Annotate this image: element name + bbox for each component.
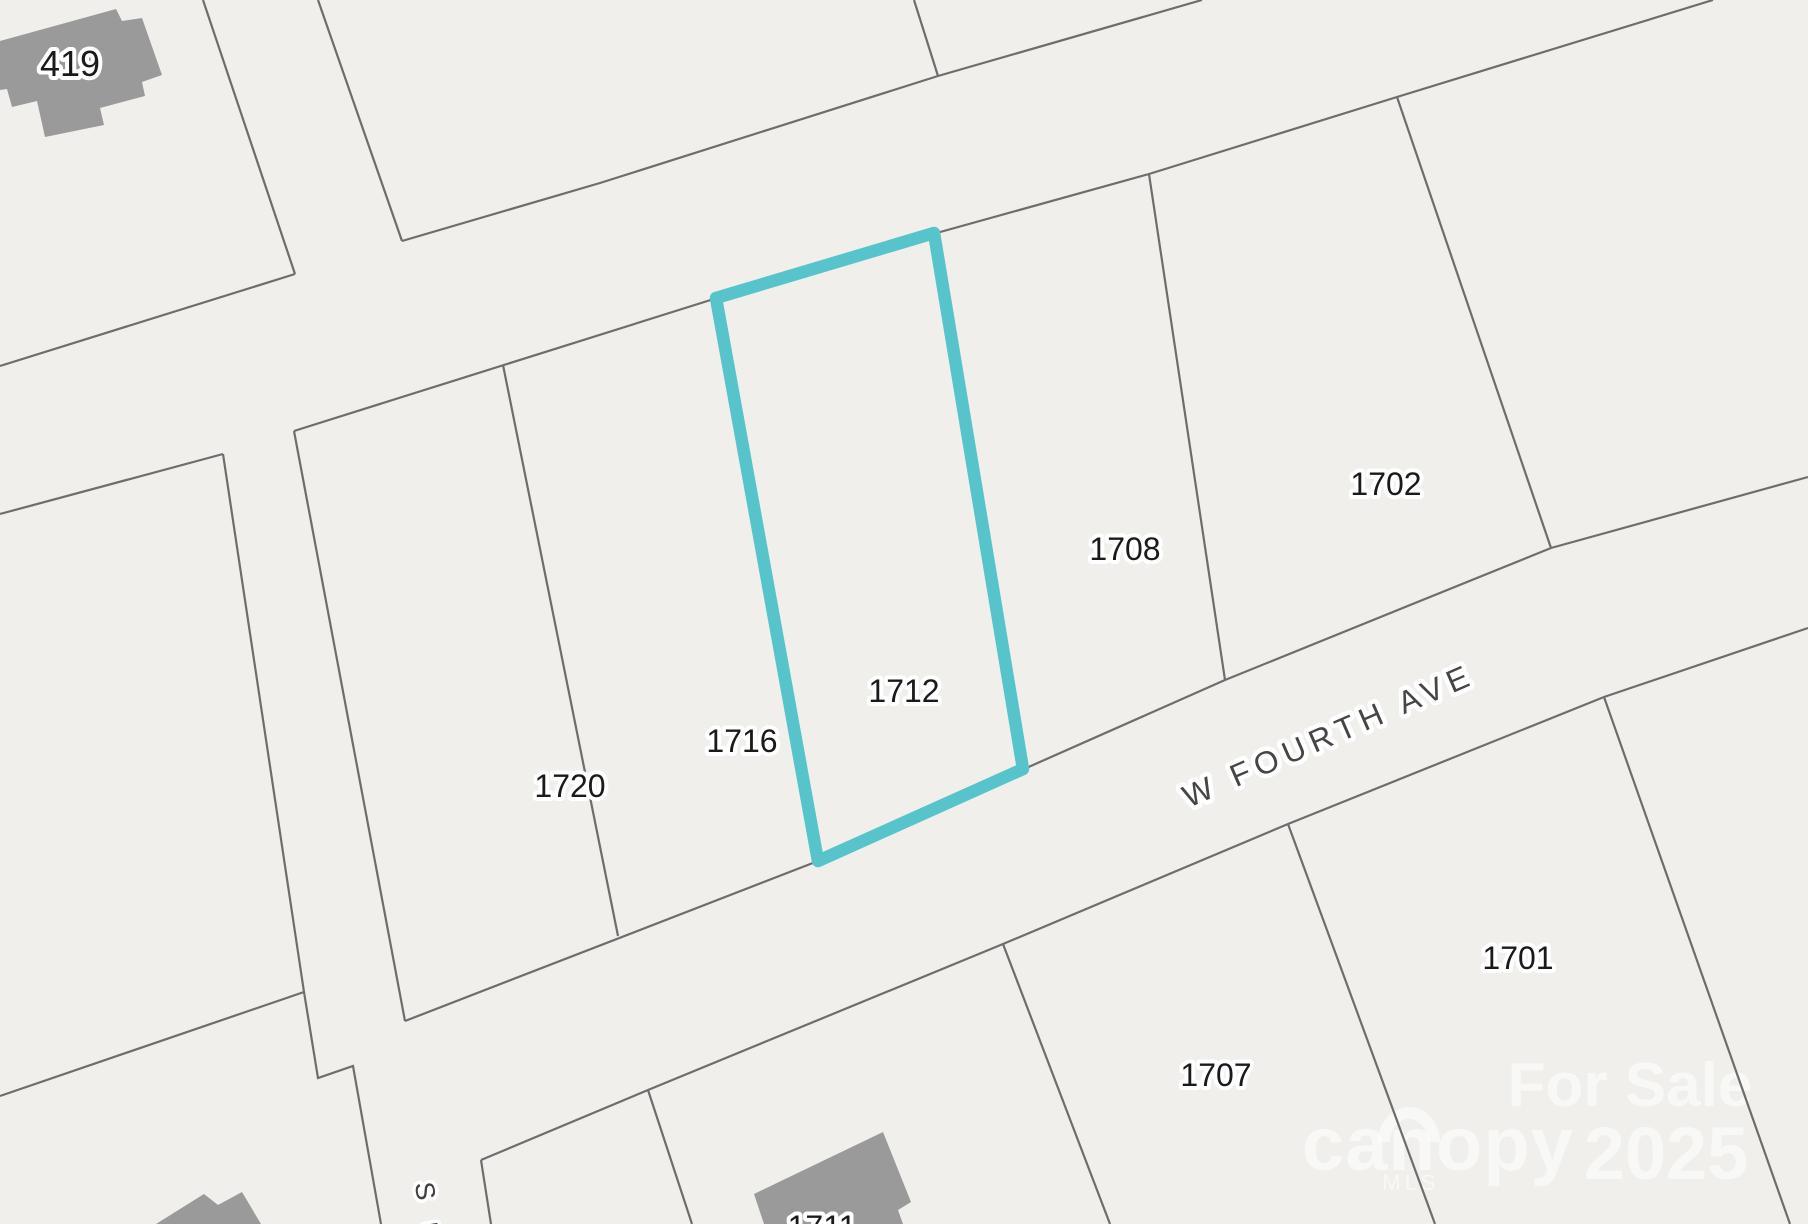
svg-text:1716: 1716 xyxy=(706,723,777,759)
svg-text:1711: 1711 xyxy=(788,1209,857,1224)
svg-text:MLS: MLS xyxy=(1382,1170,1439,1195)
svg-text:1720: 1720 xyxy=(534,768,605,804)
svg-text:1701: 1701 xyxy=(1482,940,1553,976)
svg-text:419: 419 xyxy=(40,43,100,84)
svg-text:2025: 2025 xyxy=(1584,1112,1749,1195)
svg-text:1712: 1712 xyxy=(868,673,939,709)
svg-text:1702: 1702 xyxy=(1350,466,1421,502)
svg-text:1707: 1707 xyxy=(1180,1057,1251,1093)
svg-text:1708: 1708 xyxy=(1089,531,1160,567)
